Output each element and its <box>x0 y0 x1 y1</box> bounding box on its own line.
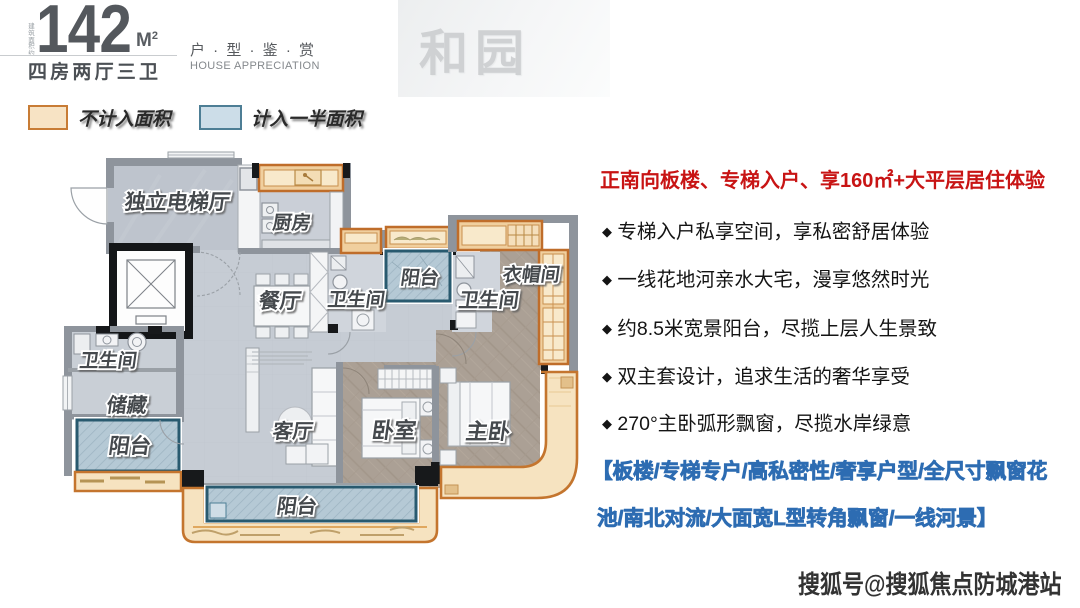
svg-text:阳台: 阳台 <box>399 266 440 289</box>
svg-text:阳台: 阳台 <box>275 494 318 518</box>
svg-text:独立电梯厅: 独立电梯厅 <box>123 189 231 214</box>
svg-text:阳台: 阳台 <box>107 433 152 458</box>
svg-text:卧室: 卧室 <box>370 418 417 443</box>
svg-text:储藏: 储藏 <box>105 393 148 417</box>
svg-text:卫生间: 卫生间 <box>457 288 520 312</box>
svg-text:客厅: 客厅 <box>270 419 314 443</box>
svg-text:卫生间: 卫生间 <box>326 288 386 311</box>
svg-text:餐厅: 餐厅 <box>257 289 302 313</box>
svg-text:衣帽间: 衣帽间 <box>501 263 561 286</box>
svg-text:主卧: 主卧 <box>464 419 511 444</box>
svg-text:卫生间: 卫生间 <box>78 349 138 372</box>
svg-text:厨房: 厨房 <box>271 211 312 234</box>
